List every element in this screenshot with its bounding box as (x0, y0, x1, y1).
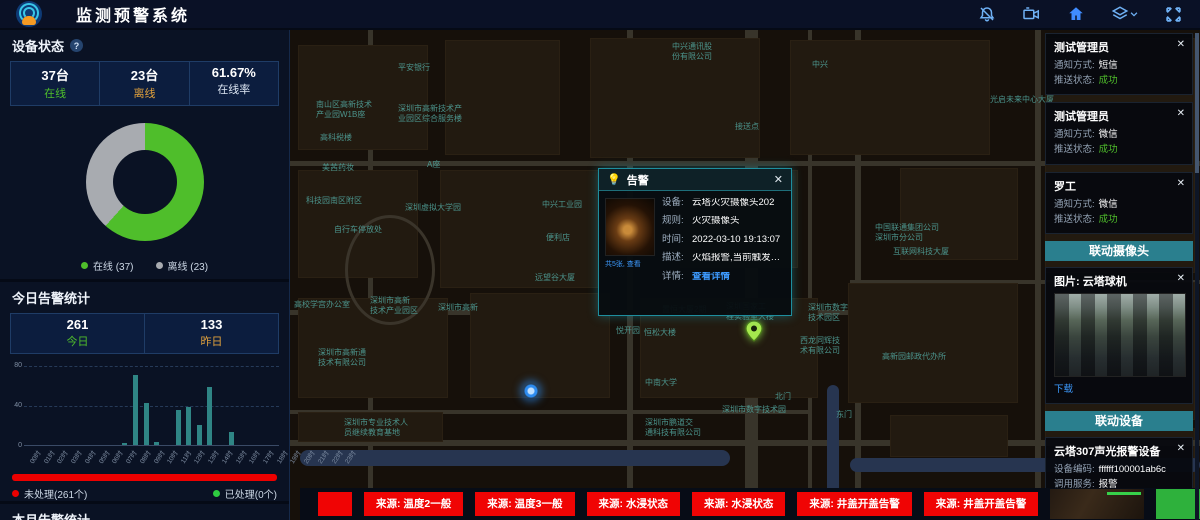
map-place-label: 远望谷大厦 (535, 273, 575, 283)
card-row: 通知方式:微信 (1054, 198, 1184, 213)
bar[interactable] (207, 387, 212, 445)
stat-value: 61.67% (190, 65, 278, 80)
alert-field-row: 描述:火焰报警,当前触发值为... (662, 253, 785, 263)
legend-dot-icon (12, 490, 19, 497)
stat-label: 今日 (11, 333, 144, 349)
layers-icon[interactable] (1111, 5, 1139, 23)
map-place-label: 深圳市专业技术人 员继续教育基地 (344, 418, 408, 439)
map-place-label: 高校学宫办公室 (294, 300, 350, 310)
home-icon[interactable] (1067, 5, 1085, 23)
map-water (827, 385, 839, 495)
card-row-label: 推送状态: (1054, 143, 1095, 158)
map-place-label: 悦开园 (616, 326, 640, 336)
alert-field-label: 时间: (662, 235, 692, 245)
bar-slot (88, 366, 99, 445)
unprocessed-progress-bar (12, 474, 277, 481)
fullscreen-icon[interactable] (1165, 6, 1182, 23)
right-sidebar: ✕测试管理员通知方式:短信推送状态:成功✕测试管理员通知方式:微信推送状态:成功… (1045, 33, 1193, 520)
legend-dot-icon (81, 262, 88, 269)
map-place-label: 互联网科技大厦 (893, 247, 949, 257)
bar-slot (162, 366, 173, 445)
view-details-link[interactable]: 查看详情 (692, 272, 730, 282)
card-row: 通知方式:微信 (1054, 128, 1184, 143)
stat-value: 23台 (100, 65, 188, 84)
map-place-label: 平安银行 (398, 63, 430, 73)
legend-item: 离线 (23) (156, 258, 209, 273)
legend-item: 在线 (37) (81, 258, 134, 273)
bar[interactable] (197, 425, 202, 445)
today-alerts-panel: 今日告警统计 261今日133昨日 80 40 0 00时01时02时03时04… (0, 279, 289, 501)
ticker-alert-item[interactable] (318, 492, 352, 516)
legend-label: 在线 (37) (93, 258, 134, 273)
map-place-label: 中兴 (812, 60, 828, 70)
bar-slot (109, 366, 120, 445)
map-building (790, 40, 990, 155)
bar-slot (67, 366, 78, 445)
today-stat-cell: 133昨日 (144, 314, 278, 353)
header-toolbar (978, 5, 1182, 23)
device-stat-cell: 37台在线 (11, 62, 99, 105)
camera-icon[interactable] (1022, 5, 1041, 23)
card-title: 云塔307声光报警设备 (1054, 443, 1184, 459)
bar-slot (247, 366, 258, 445)
card-title: 测试管理员 (1054, 39, 1184, 55)
alert-field-label: 规则: (662, 216, 692, 226)
alert-popup-title: 告警 (627, 172, 649, 188)
bar-slot (56, 366, 67, 445)
map-building (298, 45, 428, 150)
stat-label: 在线率 (190, 81, 278, 97)
scrollbar[interactable] (1195, 33, 1199, 520)
alert-field-row: 设备:云塔火灾摄像头202 (662, 198, 785, 208)
today-stat-cell: 261今日 (11, 314, 144, 353)
card-row-label: 通知方式: (1054, 128, 1095, 143)
legend-label: 离线 (23) (168, 258, 209, 273)
card-row-label: 通知方式: (1054, 198, 1095, 213)
device-stat-cell: 61.67%在线率 (189, 62, 278, 105)
legend-item: 已处理(0个) (213, 486, 277, 501)
map-place-label: 深圳市高新 (438, 303, 478, 313)
map-building (440, 170, 600, 288)
linked-devices-header: 联动设备 (1045, 411, 1193, 431)
camera-snapshot-image[interactable] (1054, 293, 1186, 377)
alert-popup: 💡 告警 ✕ 共5张, 查看 设备:云塔火灾摄像头202规则:火灾摄像头时间:2… (598, 168, 792, 316)
alert-field-row: 详情:查看详情 (662, 272, 785, 282)
bar-slot (152, 366, 163, 445)
hourly-bar-chart-xaxis: 00时01时02时03时04时05时06时07时08时09时10时11时12时1… (24, 448, 279, 472)
stat-value: 133 (145, 317, 278, 332)
stat-label: 离线 (100, 85, 188, 101)
card-row-value: 微信 (1099, 128, 1118, 143)
map-place-label: 自行车停放处 (334, 225, 382, 235)
card-row-label: 推送状态: (1054, 74, 1095, 89)
map-place-label: 深圳市高新通 技术有限公司 (318, 348, 366, 369)
bar[interactable] (144, 403, 149, 445)
card-row: 推送状态:成功 (1054, 213, 1184, 228)
map-building (445, 40, 560, 155)
card-row-value: 成功 (1099, 143, 1118, 158)
close-icon[interactable]: ✕ (774, 173, 783, 186)
close-icon[interactable]: ✕ (1177, 178, 1185, 189)
left-sidebar: 设备状态 ? 37台在线23台离线61.67%在线率 在线 (37)离线 (23… (0, 30, 290, 520)
alert-field-value: 2022-03-10 19:13:07 (692, 235, 780, 245)
stat-label: 在线 (11, 85, 99, 101)
map-place-label: 中国联通集团公司 深圳市分公司 (875, 223, 939, 244)
card-row-label: 设备编码: (1054, 463, 1095, 478)
bar-slot (45, 366, 56, 445)
card-title: 测试管理员 (1054, 108, 1184, 124)
map-building (848, 283, 1018, 403)
device-status-stats: 37台在线23台离线61.67%在线率 (10, 61, 279, 106)
alarm-bulb-icon: 💡 (607, 173, 621, 186)
legend-dot-icon (156, 262, 163, 269)
bell-off-icon[interactable] (978, 5, 996, 23)
map-place-label: 高新园邮政代办所 (882, 352, 946, 362)
bar-slot (215, 366, 226, 445)
map-place-label: 高科税楼 (320, 133, 352, 143)
card-row: 推送状态:成功 (1054, 74, 1184, 89)
close-icon[interactable]: ✕ (1177, 39, 1185, 50)
top-header: 监测预警系统 (0, 0, 1200, 30)
ticker-alert-item[interactable]: 来源: 井盖开盖告警 (797, 492, 911, 516)
ticker-alert-item[interactable]: 来源: 温度3一般 (475, 492, 574, 516)
map-place-label: 深圳市数字 技术园区 (808, 303, 848, 324)
stat-value: 261 (11, 317, 144, 332)
alert-field-label: 详情: (662, 272, 692, 282)
legend-label: 已处理(0个) (225, 486, 277, 501)
linked-camera-card: ✕ 图片: 云塔球机 下载 (1045, 267, 1193, 404)
app-logo-icon (16, 1, 42, 27)
alert-field-label: 描述: (662, 253, 692, 263)
bar-slot (173, 366, 184, 445)
notification-cards: ✕测试管理员通知方式:短信推送状态:成功✕测试管理员通知方式:微信推送状态:成功… (1045, 33, 1193, 234)
map-place-label: 深圳市高新 技术产业园区 (370, 296, 418, 317)
alert-field-label: 设备: (662, 198, 692, 208)
alert-ticker: 来源: 温度2一般来源: 温度3一般来源: 水浸状态来源: 水浸状态来源: 井盖… (300, 488, 1200, 520)
close-icon[interactable]: ✕ (1177, 273, 1185, 284)
bar-slot (98, 366, 109, 445)
map-place-label: 恒松大楼 (644, 328, 676, 338)
device-donut-legend: 在线 (37)离线 (23) (0, 258, 289, 279)
bar[interactable] (133, 375, 138, 445)
chevron-down-icon (1129, 9, 1139, 19)
ticker-alert-item[interactable]: 来源: 井盖开盖告警 (924, 492, 1038, 516)
bar-slot (226, 366, 237, 445)
card-row: 设备编码:ffffff100001ab6c (1054, 463, 1184, 478)
map-place-label: 美茜药妆 (322, 163, 354, 173)
map-place-label: 深圳虚拟大学园 (405, 203, 461, 213)
map-place-label: A座 (427, 160, 440, 170)
device-stat-cell: 23台离线 (99, 62, 188, 105)
card-row: 通知方式:短信 (1054, 59, 1184, 74)
map-place-label: 深圳市鹏道交 通科技有限公司 (645, 418, 701, 439)
alert-location-pin[interactable] (745, 320, 763, 342)
map-place-label: 深圳市数字技术园 (722, 405, 786, 415)
card-title: 罗工 (1054, 178, 1184, 194)
alert-fields: 设备:云塔火灾摄像头202规则:火灾摄像头时间:2022-03-10 19:13… (662, 198, 785, 290)
alert-field-value: 火焰报警,当前触发值为... (692, 253, 785, 263)
bar-slot (183, 366, 194, 445)
map-place-label: 中南大学 (645, 378, 677, 388)
map-place-label: 北门 (775, 392, 791, 402)
bar[interactable] (176, 410, 181, 445)
bar[interactable] (122, 443, 127, 445)
alert-field-value: 云塔火灾摄像头202 (692, 198, 774, 208)
hourly-bar-chart: 80 40 0 (24, 366, 279, 446)
legend-item: 未处理(261个) (12, 486, 87, 501)
map-place-label: 西龙同辉技 术有限公司 (800, 336, 840, 357)
download-link[interactable]: 下载 (1054, 381, 1073, 395)
ticker-alert-item[interactable]: 来源: 温度2一般 (364, 492, 463, 516)
device-donut-chart (86, 123, 204, 241)
bar[interactable] (154, 442, 159, 445)
stat-value: 37台 (11, 65, 99, 84)
bar-slot (120, 366, 131, 445)
bar[interactable] (186, 407, 191, 445)
map-place-label: 东门 (836, 410, 852, 420)
notification-card: ✕测试管理员通知方式:微信推送状态:成功 (1045, 102, 1193, 164)
map-place-label: 中兴工业园 (542, 200, 582, 210)
alert-field-row: 时间:2022-03-10 19:13:07 (662, 235, 785, 245)
legend-label: 未处理(261个) (24, 486, 87, 501)
card-row-value: 微信 (1099, 198, 1118, 213)
card-row-value: 成功 (1099, 213, 1118, 228)
bar-slot (237, 366, 248, 445)
today-alerts-stats: 261今日133昨日 (10, 313, 279, 354)
monitoring-dashboard: 监测预警系统 (0, 0, 1200, 520)
linked-camera-header: 联动摄像头 (1045, 241, 1193, 261)
bar-slot (24, 366, 35, 445)
bar[interactable] (229, 432, 234, 445)
alert-field-row: 规则:火灾摄像头 (662, 216, 785, 226)
device-status-title: 设备状态 (12, 36, 64, 55)
card-row-value: 成功 (1099, 74, 1118, 89)
map-building (470, 293, 610, 398)
alert-thumbnail-image[interactable] (605, 198, 655, 256)
ticker-alert-item[interactable]: 来源: 水浸状态 (692, 492, 785, 516)
card-row-label: 推送状态: (1054, 213, 1095, 228)
bar-slot (77, 366, 88, 445)
help-icon[interactable]: ? (70, 39, 83, 52)
stat-label: 昨日 (145, 333, 278, 349)
bar-slot (141, 366, 152, 445)
bar-slot (194, 366, 205, 445)
close-icon[interactable]: ✕ (1177, 108, 1185, 119)
legend-dot-icon (213, 490, 220, 497)
ticker-snapshot-image[interactable] (1050, 489, 1144, 519)
bar-slot (268, 366, 279, 445)
alert-thumbnail-caption[interactable]: 共5张, 查看 (605, 259, 655, 269)
month-alerts-panel: 本月告警统计 7631146 (0, 501, 289, 520)
today-alerts-title: 今日告警统计 (12, 288, 90, 307)
alert-popup-header: 💡 告警 ✕ (599, 169, 791, 191)
ticker-alert-item[interactable]: 来源: 水浸状态 (587, 492, 680, 516)
page-title: 监测预警系统 (76, 2, 190, 26)
bar-slot (258, 366, 269, 445)
notification-card: ✕测试管理员通知方式:短信推送状态:成功 (1045, 33, 1193, 95)
processed-legend: 未处理(261个)已处理(0个) (12, 486, 277, 501)
bar-slot (35, 366, 46, 445)
map-place-label: 便利店 (546, 233, 570, 243)
map-building (890, 415, 1008, 457)
card-row-value: ffffff100001ab6c (1099, 463, 1166, 478)
bar-slot (130, 366, 141, 445)
month-alerts-title: 本月告警统计 (12, 510, 90, 520)
card-row-value: 短信 (1099, 59, 1118, 74)
device-status-panel: 设备状态 ? 37台在线23台离线61.67%在线率 在线 (37)离线 (23… (0, 30, 289, 279)
alert-thumbnail-wrap: 共5张, 查看 (605, 198, 655, 290)
alert-field-value: 火灾摄像头 (692, 216, 740, 226)
map-place-label: 深圳市高新技术产 业园区综合服务楼 (398, 104, 462, 125)
ticker-snapshot-green[interactable] (1156, 489, 1200, 519)
camera-card-title: 图片: 云塔球机 (1054, 273, 1184, 289)
map-place-label: 接送点 (735, 122, 759, 132)
bar-slot (205, 366, 216, 445)
card-row-label: 通知方式: (1054, 59, 1095, 74)
map-place-label: 科技园南区附区 (306, 196, 362, 206)
notification-card: ✕罗工通知方式:微信推送状态:成功 (1045, 172, 1193, 234)
map-place-label: 南山区高新技术 产业园W1B座 (316, 100, 372, 121)
device-location-dot[interactable] (522, 382, 540, 400)
close-icon[interactable]: ✕ (1177, 443, 1185, 454)
map-place-label: 中兴通讯股 份有限公司 (672, 42, 712, 63)
card-row: 推送状态:成功 (1054, 143, 1184, 158)
